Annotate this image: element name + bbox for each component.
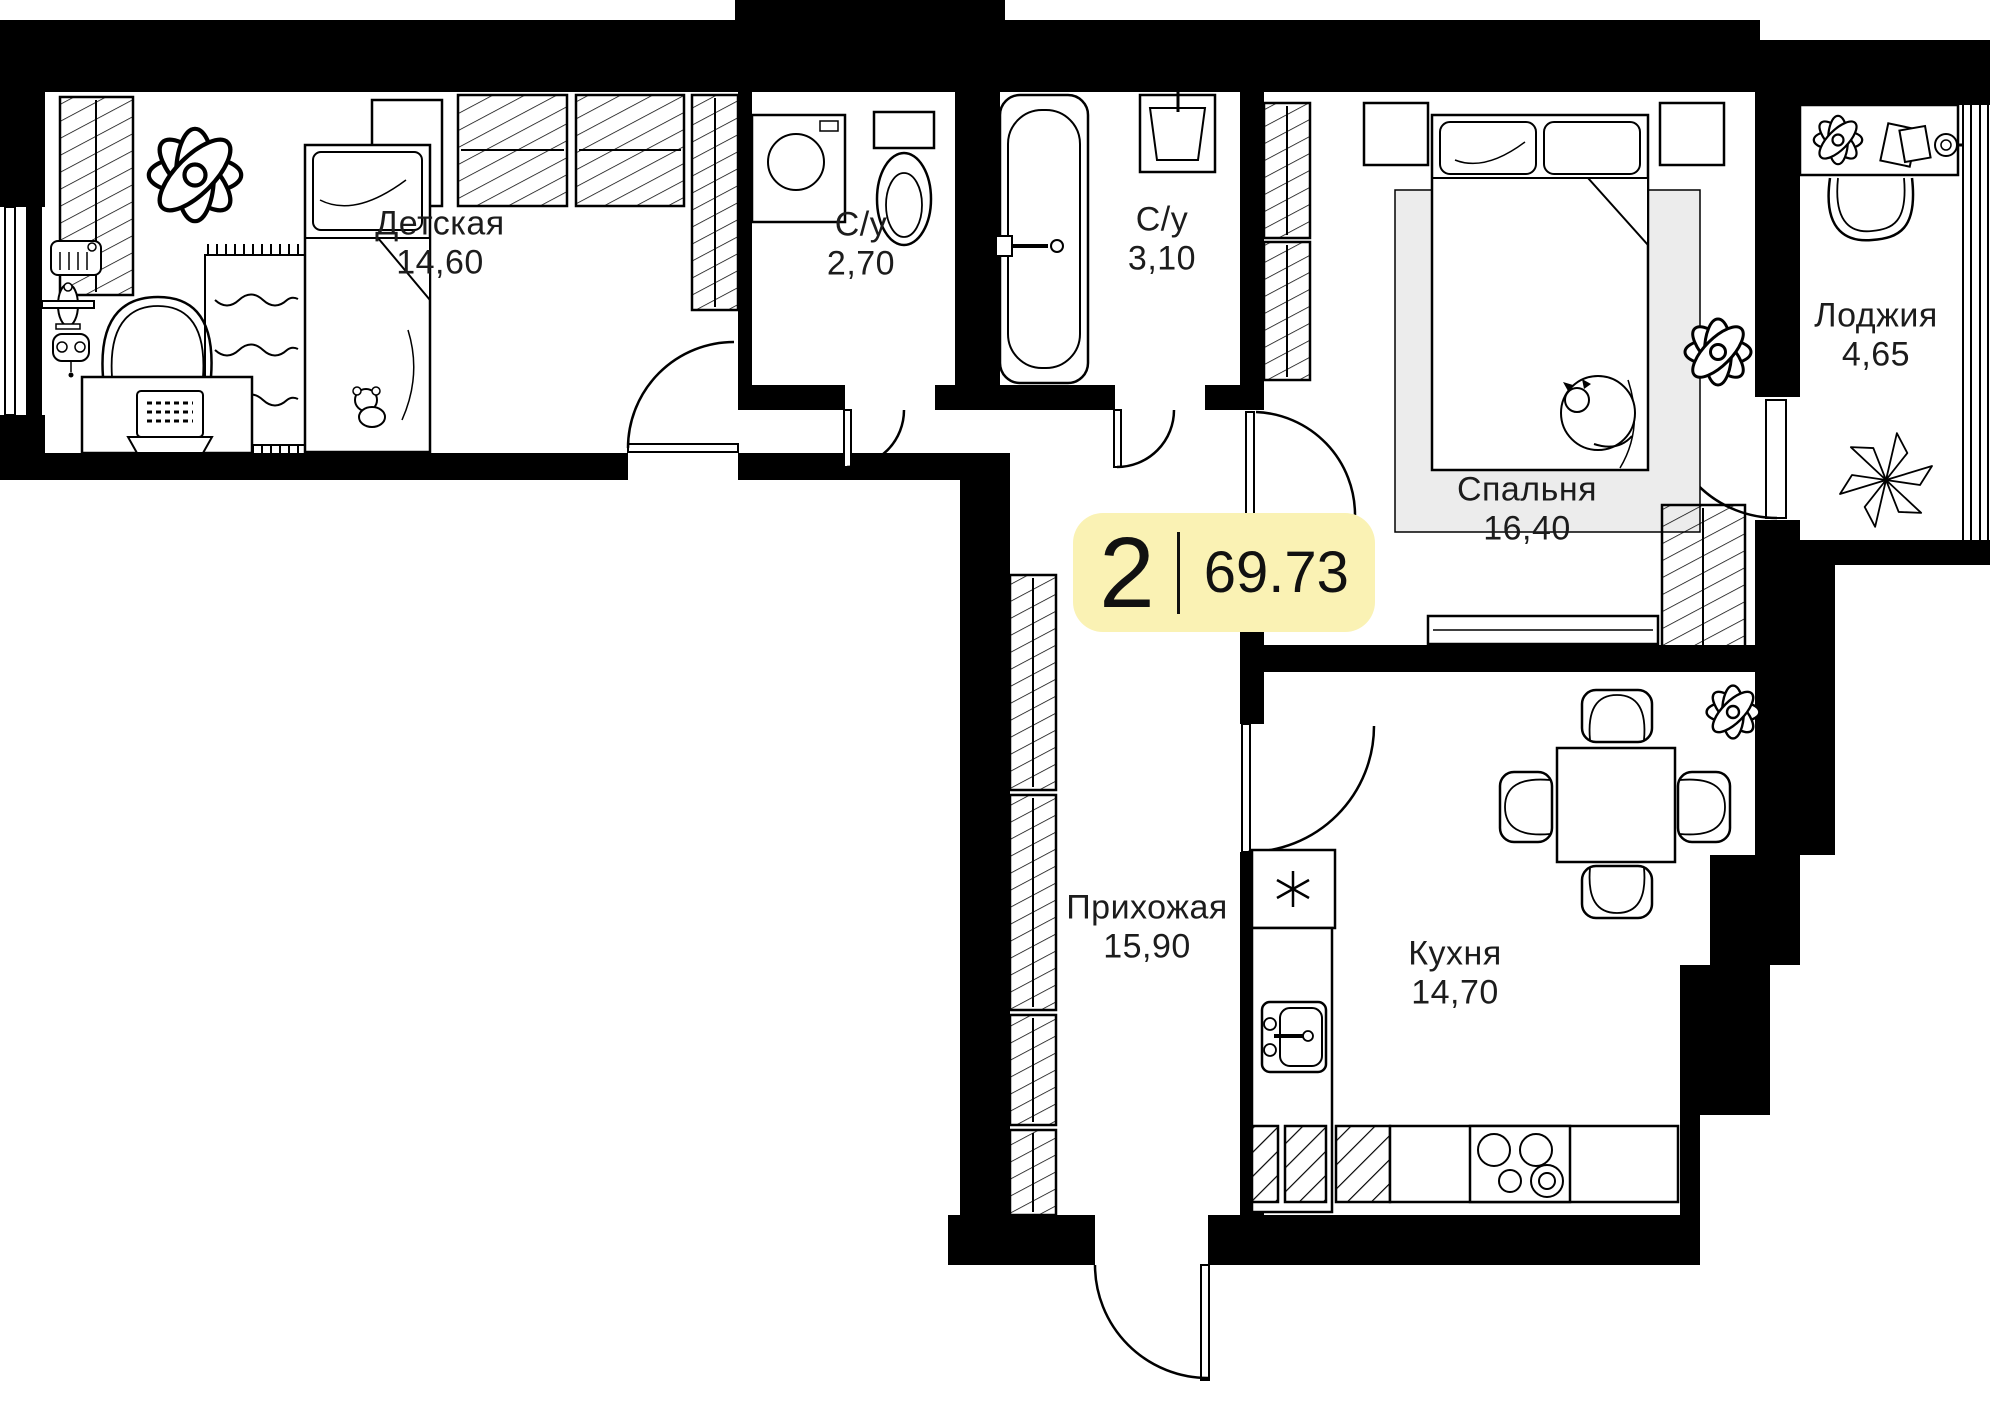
room-area: 4,65 <box>1814 336 1937 375</box>
toy-controller <box>53 334 89 378</box>
door-bedroom <box>1246 412 1355 515</box>
door-wc2 <box>1114 410 1174 467</box>
plant-icon <box>1707 686 1760 739</box>
room-area: 2,70 <box>827 245 895 284</box>
room-area: 16,40 <box>1457 510 1597 549</box>
room-area: 14,70 <box>1408 974 1502 1013</box>
wardrobe <box>458 95 567 206</box>
room-name: Спальня <box>1457 471 1597 510</box>
room-label-bedroom: Спальня 16,40 <box>1457 471 1597 550</box>
room-area: 15,90 <box>1066 928 1228 967</box>
room-name: Детская <box>375 205 504 244</box>
room-area: 3,10 <box>1128 240 1196 279</box>
vent-shaft <box>1250 1126 1278 1202</box>
wardrobe <box>1010 575 1056 790</box>
door-entrance <box>1095 1265 1209 1380</box>
door-children <box>628 342 738 452</box>
nightstand <box>1660 103 1724 165</box>
table <box>1557 748 1675 862</box>
wardrobe <box>1662 505 1745 650</box>
hallway-furniture <box>1010 575 1056 1215</box>
stove <box>1470 1126 1570 1202</box>
loggia-glazing <box>1963 105 1988 540</box>
fridge <box>1252 850 1335 928</box>
desk-chair <box>1829 178 1913 240</box>
room-name: С/у <box>827 206 895 245</box>
sink <box>1140 88 1215 172</box>
wardrobe <box>1264 103 1310 238</box>
badge-divider <box>1177 532 1180 614</box>
badge-total-area: 69.73 <box>1204 544 1349 602</box>
nightstand <box>1364 103 1428 165</box>
vent-shaft <box>1336 1126 1390 1202</box>
room-name: Лоджия <box>1814 297 1937 336</box>
room-area: 14,60 <box>375 244 504 283</box>
wardrobe <box>576 95 684 206</box>
floor-plan-drawing <box>0 0 2000 1402</box>
room-label-wc2: С/у 3,10 <box>1128 201 1196 280</box>
plant-icon <box>1840 433 1932 527</box>
wardrobe <box>1010 795 1056 1010</box>
plant-icon <box>1814 116 1862 164</box>
dresser <box>1428 616 1658 644</box>
bathtub <box>996 95 1088 383</box>
desk-chair <box>102 297 211 377</box>
bed-single <box>305 145 430 452</box>
badge-rooms-count: 2 <box>1099 523 1155 623</box>
room-name: Кухня <box>1408 935 1502 974</box>
vent-shaft <box>1285 1126 1326 1202</box>
bed-double <box>1432 115 1648 470</box>
cat <box>1561 376 1635 450</box>
dining-set <box>1500 690 1730 918</box>
kitchen-sink <box>1262 1002 1326 1072</box>
room-label-kitchen: Кухня 14,70 <box>1408 935 1502 1014</box>
apartment-badge: 2 69.73 <box>1073 513 1375 632</box>
room-label-wc1: С/у 2,70 <box>827 206 895 285</box>
plant-icon <box>1685 319 1751 385</box>
floor-plan: Детская 14,60 С/у 2,70 С/у 3,10 Спальня … <box>0 0 2000 1402</box>
desk <box>82 377 252 453</box>
room-label-loggia: Лоджия 4,65 <box>1814 297 1937 376</box>
wardrobe <box>692 95 738 310</box>
room-name: Прихожая <box>1066 889 1228 928</box>
laptop <box>128 391 212 453</box>
room-label-children: Детская 14,60 <box>375 205 504 284</box>
wardrobe <box>1010 1130 1056 1215</box>
wardrobe <box>1010 1015 1056 1125</box>
door-kitchen <box>1242 724 1374 852</box>
room-label-hall: Прихожая 15,90 <box>1066 889 1228 968</box>
room-name: С/у <box>1128 201 1196 240</box>
toy-keyboard <box>51 241 101 275</box>
plant-icon <box>149 129 241 221</box>
children-window <box>5 207 42 415</box>
wardrobe <box>1264 242 1310 380</box>
